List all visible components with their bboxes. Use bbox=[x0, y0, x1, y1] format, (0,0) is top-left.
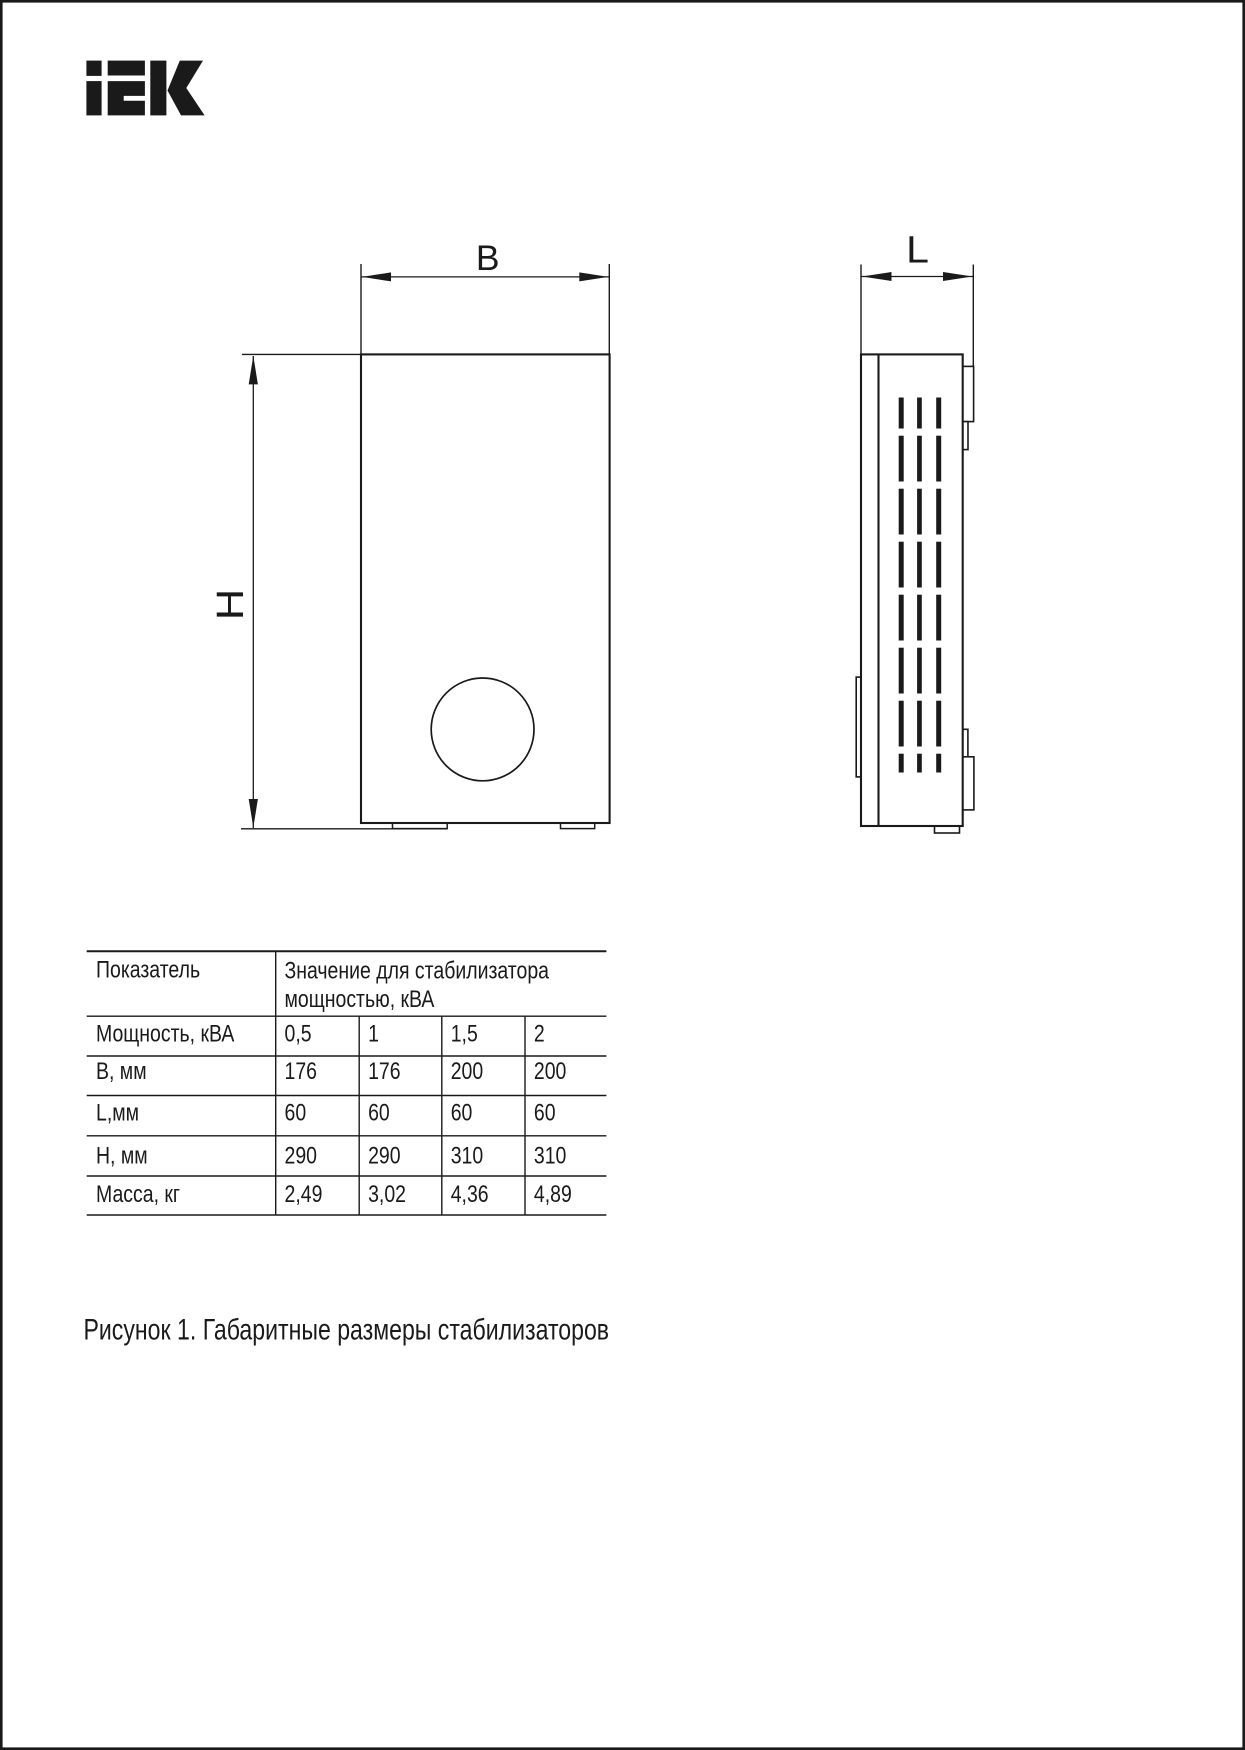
svg-text:2,49: 2,49 bbox=[285, 1180, 323, 1208]
svg-text:60: 60 bbox=[368, 1098, 390, 1126]
svg-text:B: B bbox=[476, 238, 500, 278]
svg-text:200: 200 bbox=[451, 1057, 483, 1085]
svg-text:Мощность, кВА: Мощность, кВА bbox=[96, 1019, 235, 1047]
svg-text:290: 290 bbox=[285, 1141, 317, 1169]
svg-text:Показатель: Показатель bbox=[96, 955, 200, 983]
svg-text:1,5: 1,5 bbox=[451, 1019, 478, 1047]
svg-text:60: 60 bbox=[451, 1098, 473, 1126]
svg-text:310: 310 bbox=[534, 1141, 566, 1169]
svg-text:Значение для стабилизатора: Значение для стабилизатора bbox=[285, 956, 550, 984]
svg-text:0,5: 0,5 bbox=[285, 1019, 312, 1047]
svg-text:200: 200 bbox=[534, 1057, 566, 1085]
svg-text:4,89: 4,89 bbox=[534, 1180, 572, 1208]
svg-text:2: 2 bbox=[534, 1019, 545, 1047]
svg-text:мощностью, кВА: мощностью, кВА bbox=[285, 985, 435, 1013]
svg-text:4,36: 4,36 bbox=[451, 1180, 489, 1208]
svg-text:В, мм: В, мм bbox=[96, 1057, 147, 1085]
svg-text:3,02: 3,02 bbox=[368, 1180, 406, 1208]
svg-text:Масса, кг: Масса, кг bbox=[96, 1180, 180, 1208]
svg-text:1: 1 bbox=[368, 1019, 379, 1047]
svg-text:290: 290 bbox=[368, 1141, 400, 1169]
svg-text:60: 60 bbox=[285, 1098, 307, 1126]
svg-text:60: 60 bbox=[534, 1098, 556, 1126]
svg-text:H: H bbox=[208, 589, 251, 620]
svg-text:L: L bbox=[906, 229, 929, 271]
svg-text:176: 176 bbox=[368, 1057, 400, 1085]
svg-text:310: 310 bbox=[451, 1141, 483, 1169]
svg-text:Н, мм: Н, мм bbox=[96, 1141, 148, 1169]
svg-text:176: 176 bbox=[285, 1057, 317, 1085]
svg-text:L,мм: L,мм bbox=[96, 1098, 139, 1126]
svg-text:Рисунок 1. Габаритные размеры: Рисунок 1. Габаритные размеры стабилизат… bbox=[84, 1313, 610, 1347]
